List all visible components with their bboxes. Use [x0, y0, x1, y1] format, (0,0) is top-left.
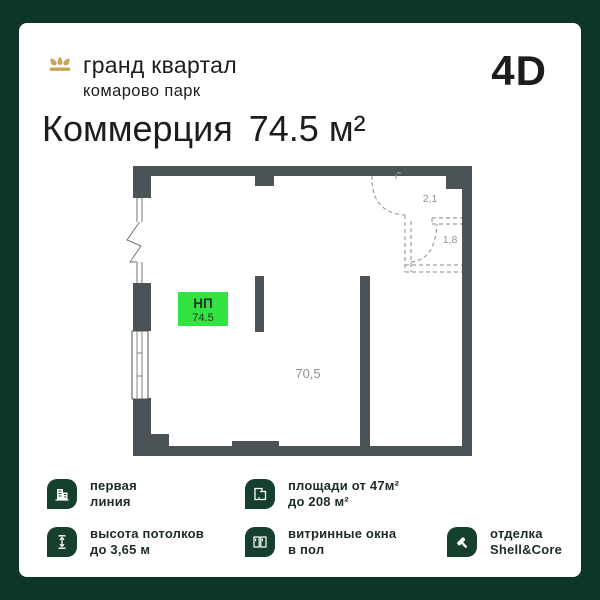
- page-title: Коммерция 74.5 м²: [42, 108, 366, 150]
- brand-logo: гранд квартал комарово парк: [46, 52, 237, 101]
- feature-ceiling-height: высота потолков до 3,65 м: [47, 526, 245, 557]
- feature-line2: до 3,65 м: [90, 542, 204, 558]
- unit-area: 74.5: [192, 312, 213, 324]
- ceiling-height-icon: [47, 527, 77, 557]
- paint-roller-icon: [447, 527, 477, 557]
- storefront-window-icon: [245, 527, 275, 557]
- small-room-1-label: 2,1: [423, 193, 438, 205]
- crown-icon: [46, 56, 74, 75]
- feature-line1: высота потолков: [90, 526, 204, 542]
- title-area: 74.5 м²: [249, 108, 366, 150]
- feature-line1: первая: [90, 478, 137, 494]
- floor-plan: 70,5 2,1 1,8 НП 74.5: [119, 161, 489, 461]
- feature-finish: отделка Shell&Core: [447, 526, 567, 557]
- flyer-card: гранд квартал комарово парк 4D Коммерция…: [19, 23, 581, 577]
- feature-area-range: площади от 47м² до 208 м²: [245, 478, 447, 509]
- unit-tag: НП 74.5: [178, 292, 228, 326]
- features-grid: первая линия площади от 47м² до 208 м²: [47, 478, 567, 557]
- feature-line2: Shell&Core: [490, 542, 562, 558]
- brand-name: гранд квартал: [83, 52, 237, 79]
- feature-line2: в пол: [288, 542, 396, 558]
- building-icon: [47, 479, 77, 509]
- format-badge: 4D: [491, 47, 547, 95]
- feature-line2: до 208 м²: [288, 494, 399, 510]
- area-range-icon: [245, 479, 275, 509]
- glass-break-line: [127, 198, 142, 283]
- unit-label: НП: [193, 296, 212, 311]
- main-room-area-label: 70,5: [295, 366, 320, 381]
- small-room-2-label: 1,8: [443, 234, 458, 246]
- feature-line1: витринные окна: [288, 526, 396, 542]
- feature-line1: площади от 47м²: [288, 478, 399, 494]
- feature-storefront-windows: витринные окна в пол: [245, 526, 447, 557]
- title-category: Коммерция: [42, 108, 233, 150]
- brand-subtitle: комарово парк: [83, 82, 237, 101]
- storefront-window: [132, 331, 148, 399]
- feature-line2: линия: [90, 494, 137, 510]
- feature-line1: отделка: [490, 526, 562, 542]
- feature-first-line: первая линия: [47, 478, 245, 509]
